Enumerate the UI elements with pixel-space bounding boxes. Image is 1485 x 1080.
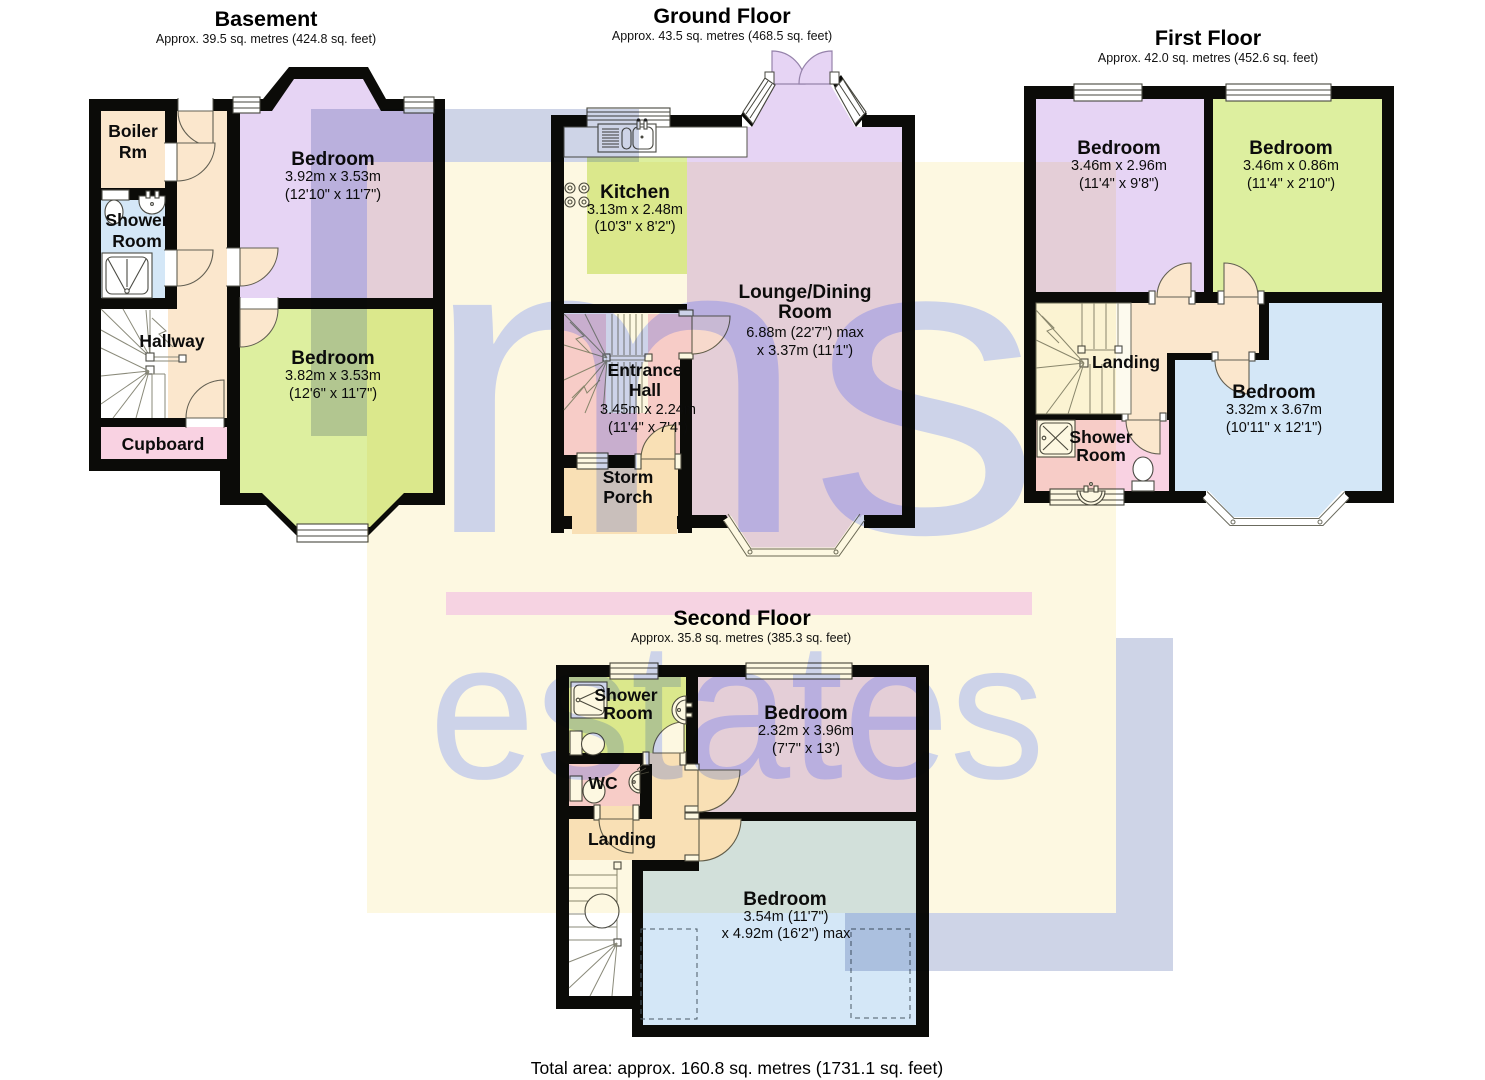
svg-text:Total area: approx. 160.8 sq.: Total area: approx. 160.8 sq. metres (17… <box>531 1058 943 1078</box>
svg-text:Bedroom: Bedroom <box>1077 138 1160 159</box>
svg-text:3.46m x 0.86m: 3.46m x 0.86m <box>1243 158 1339 174</box>
svg-text:First Floor: First Floor <box>1155 26 1262 50</box>
svg-text:Approx. 42.0 sq. metres (452.6: Approx. 42.0 sq. metres (452.6 sq. feet) <box>1098 51 1318 65</box>
svg-text:(11'4" x 2'10"): (11'4" x 2'10") <box>1247 176 1335 192</box>
svg-text:Basement: Basement <box>215 7 318 31</box>
svg-text:Shower: Shower <box>105 210 168 230</box>
svg-text:x 4.92m (16'2") max: x 4.92m (16'2") max <box>722 926 852 942</box>
svg-text:Hallway: Hallway <box>139 331 204 351</box>
svg-text:Rm: Rm <box>119 142 147 162</box>
svg-text:Ground Floor: Ground Floor <box>653 4 791 28</box>
svg-text:Cupboard: Cupboard <box>122 434 205 454</box>
svg-text:Approx. 43.5 sq. metres (468.5: Approx. 43.5 sq. metres (468.5 sq. feet) <box>612 29 832 43</box>
svg-text:Bedroom: Bedroom <box>1249 138 1332 159</box>
svg-text:Bedroom: Bedroom <box>1232 382 1315 403</box>
svg-text:ms: ms <box>422 144 1042 624</box>
svg-text:Room: Room <box>112 231 162 251</box>
svg-text:Approx. 39.5 sq. metres (424.8: Approx. 39.5 sq. metres (424.8 sq. feet) <box>156 32 376 46</box>
svg-text:estates: estates <box>429 601 1045 820</box>
svg-text:3.32m x 3.67m: 3.32m x 3.67m <box>1226 402 1322 418</box>
svg-text:Boiler: Boiler <box>108 121 158 141</box>
svg-text:(10'11" x 12'1"): (10'11" x 12'1") <box>1226 420 1322 436</box>
